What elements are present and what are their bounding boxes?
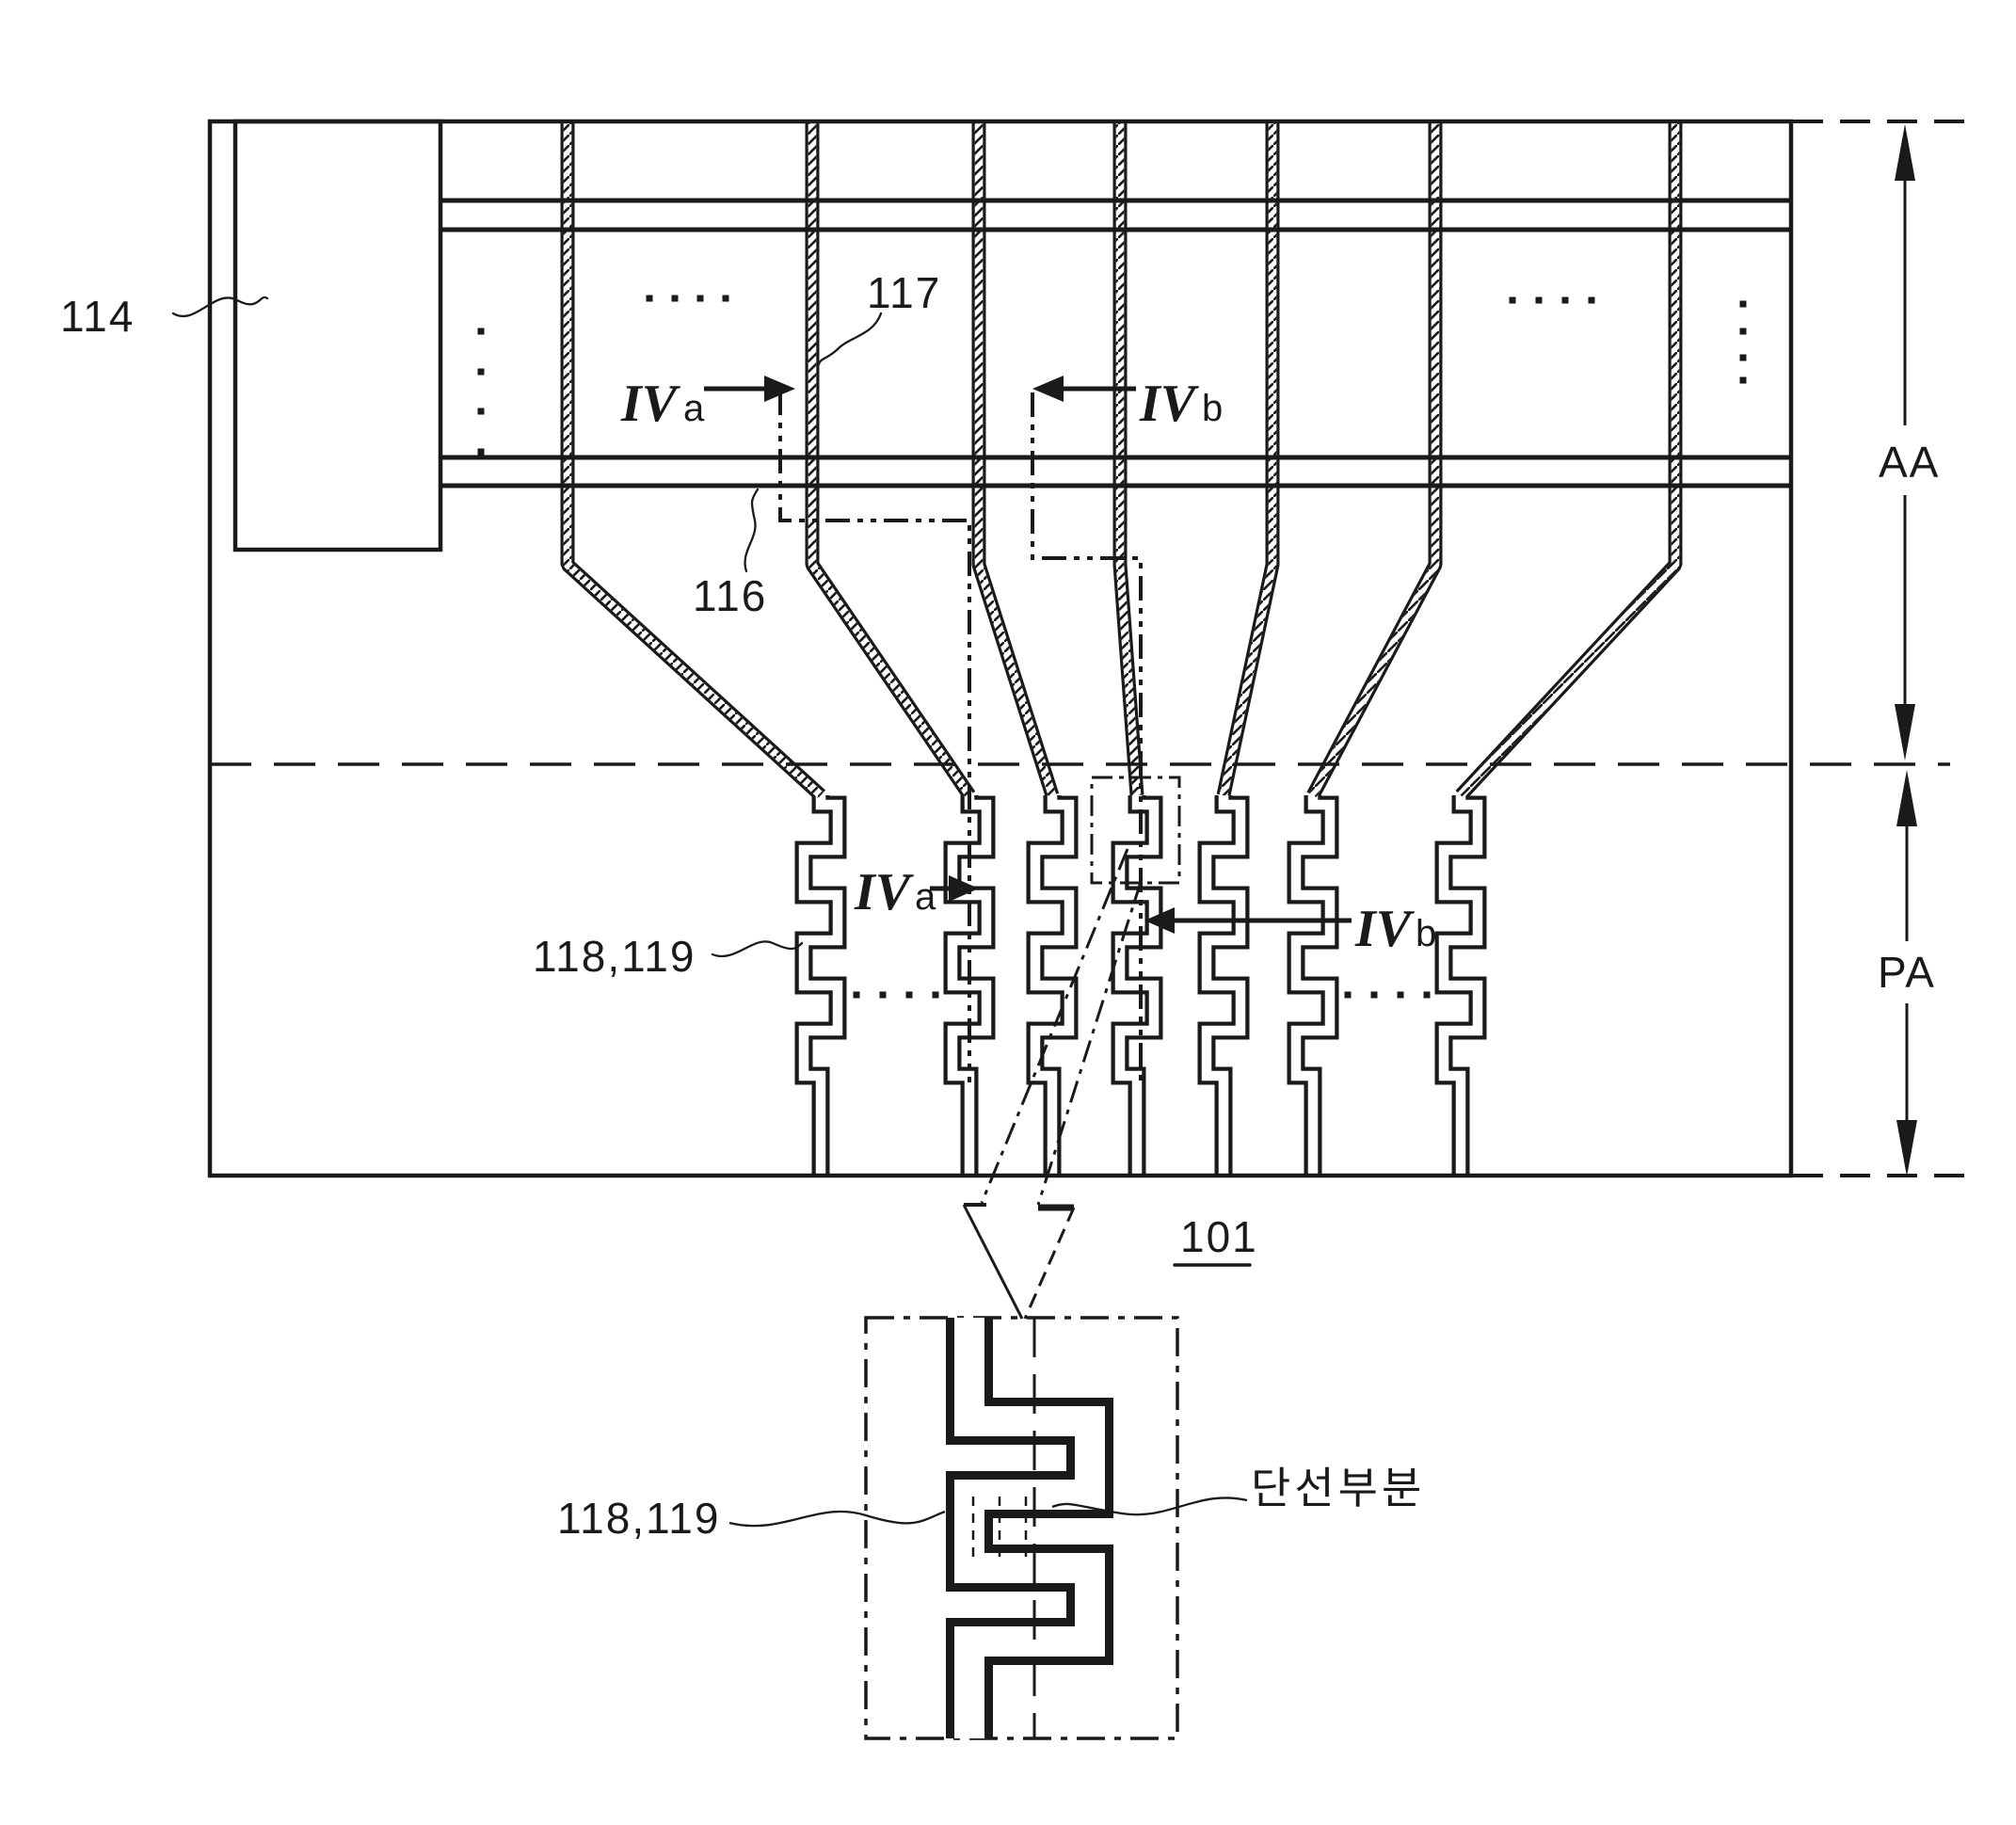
data-line-7 [1444, 123, 1675, 1176]
dot-icon [1740, 301, 1747, 308]
dot-icon [1562, 297, 1569, 304]
gate-driver-block [235, 121, 440, 550]
iva-label-pad-suffix: a [915, 876, 936, 918]
ivb-arrowhead-icon [1032, 376, 1064, 402]
dot-icon [880, 992, 887, 999]
iva-label-top-suffix: a [683, 388, 705, 429]
ivb-label-top: IV [1139, 375, 1200, 433]
dot-icon [1510, 297, 1516, 304]
data-line-fanout-and-pads [568, 123, 1675, 1176]
label-117: 117 [867, 268, 941, 317]
label-101: 101 [1180, 1212, 1258, 1261]
patent-figure: IV a IV b IV a IV b 114 117 11 [0, 0, 2016, 1825]
dot-icon [697, 296, 704, 302]
label-pa: PA [1878, 948, 1936, 997]
dot-icon [906, 992, 913, 999]
dot-icon [672, 296, 679, 302]
leader-118-119 [712, 941, 802, 956]
dot-icon [1345, 992, 1352, 999]
data-line-6 [1296, 123, 1435, 1176]
label-disconnection: 단선부분 [1251, 1464, 1425, 1513]
dot-icon [1371, 992, 1378, 999]
label-114: 114 [60, 292, 135, 341]
dot-icon [647, 296, 653, 302]
leader-114 [173, 297, 267, 316]
iva-label-pad: IV [854, 863, 915, 921]
inset-magnified-pad: 118,119 단선부분 [557, 1318, 1425, 1738]
figure-page: IV a IV b IV a IV b 114 117 11 [0, 0, 2016, 1825]
leader-117 [819, 313, 881, 364]
dimension-pa: PA [1793, 770, 1967, 1177]
aa-arrowhead-down-icon [1895, 704, 1915, 760]
dot-icon [723, 296, 729, 302]
inset-serpentine-outer [969, 1318, 1090, 1738]
dot-icon [1740, 328, 1747, 335]
dot-icon [933, 992, 939, 999]
ivb-label-pad: IV [1354, 900, 1416, 958]
dot-icon [1424, 992, 1431, 999]
aa-arrowhead-up-icon [1895, 124, 1915, 181]
dimension-aa: AA [1793, 121, 1967, 760]
dot-icon [478, 408, 485, 415]
data-line-5 [1207, 123, 1272, 1176]
pa-arrowhead-up-icon [1896, 770, 1917, 826]
label-116: 116 [693, 571, 767, 620]
label-inset-118-119: 118,119 [557, 1494, 720, 1543]
pa-arrowhead-down-icon [1896, 1120, 1917, 1177]
arrow-edge-right [1025, 1208, 1074, 1319]
leader-inset-118-119 [729, 1512, 945, 1526]
ivb-label-top-suffix: b [1202, 388, 1223, 429]
inset-border [866, 1318, 1177, 1738]
dot-icon [478, 369, 485, 376]
dot-icon [1740, 355, 1747, 361]
dot-icon [1398, 992, 1404, 999]
ivb-label-pad-suffix: b [1416, 913, 1436, 954]
dot-icon [478, 449, 485, 456]
iva-label-top: IV [620, 375, 681, 433]
dot-icon [1589, 297, 1595, 304]
arrow-edge-left [964, 1205, 1022, 1319]
data-line-4 [1120, 123, 1154, 1176]
label-118-119: 118,119 [533, 932, 696, 981]
dot-icon [1536, 297, 1543, 304]
leader-116 [745, 489, 758, 571]
dot-icon [854, 992, 860, 999]
data-line-1 [568, 123, 838, 1176]
dot-icon [478, 328, 485, 335]
dot-icon [1740, 377, 1747, 384]
label-aa: AA [1879, 438, 1940, 487]
